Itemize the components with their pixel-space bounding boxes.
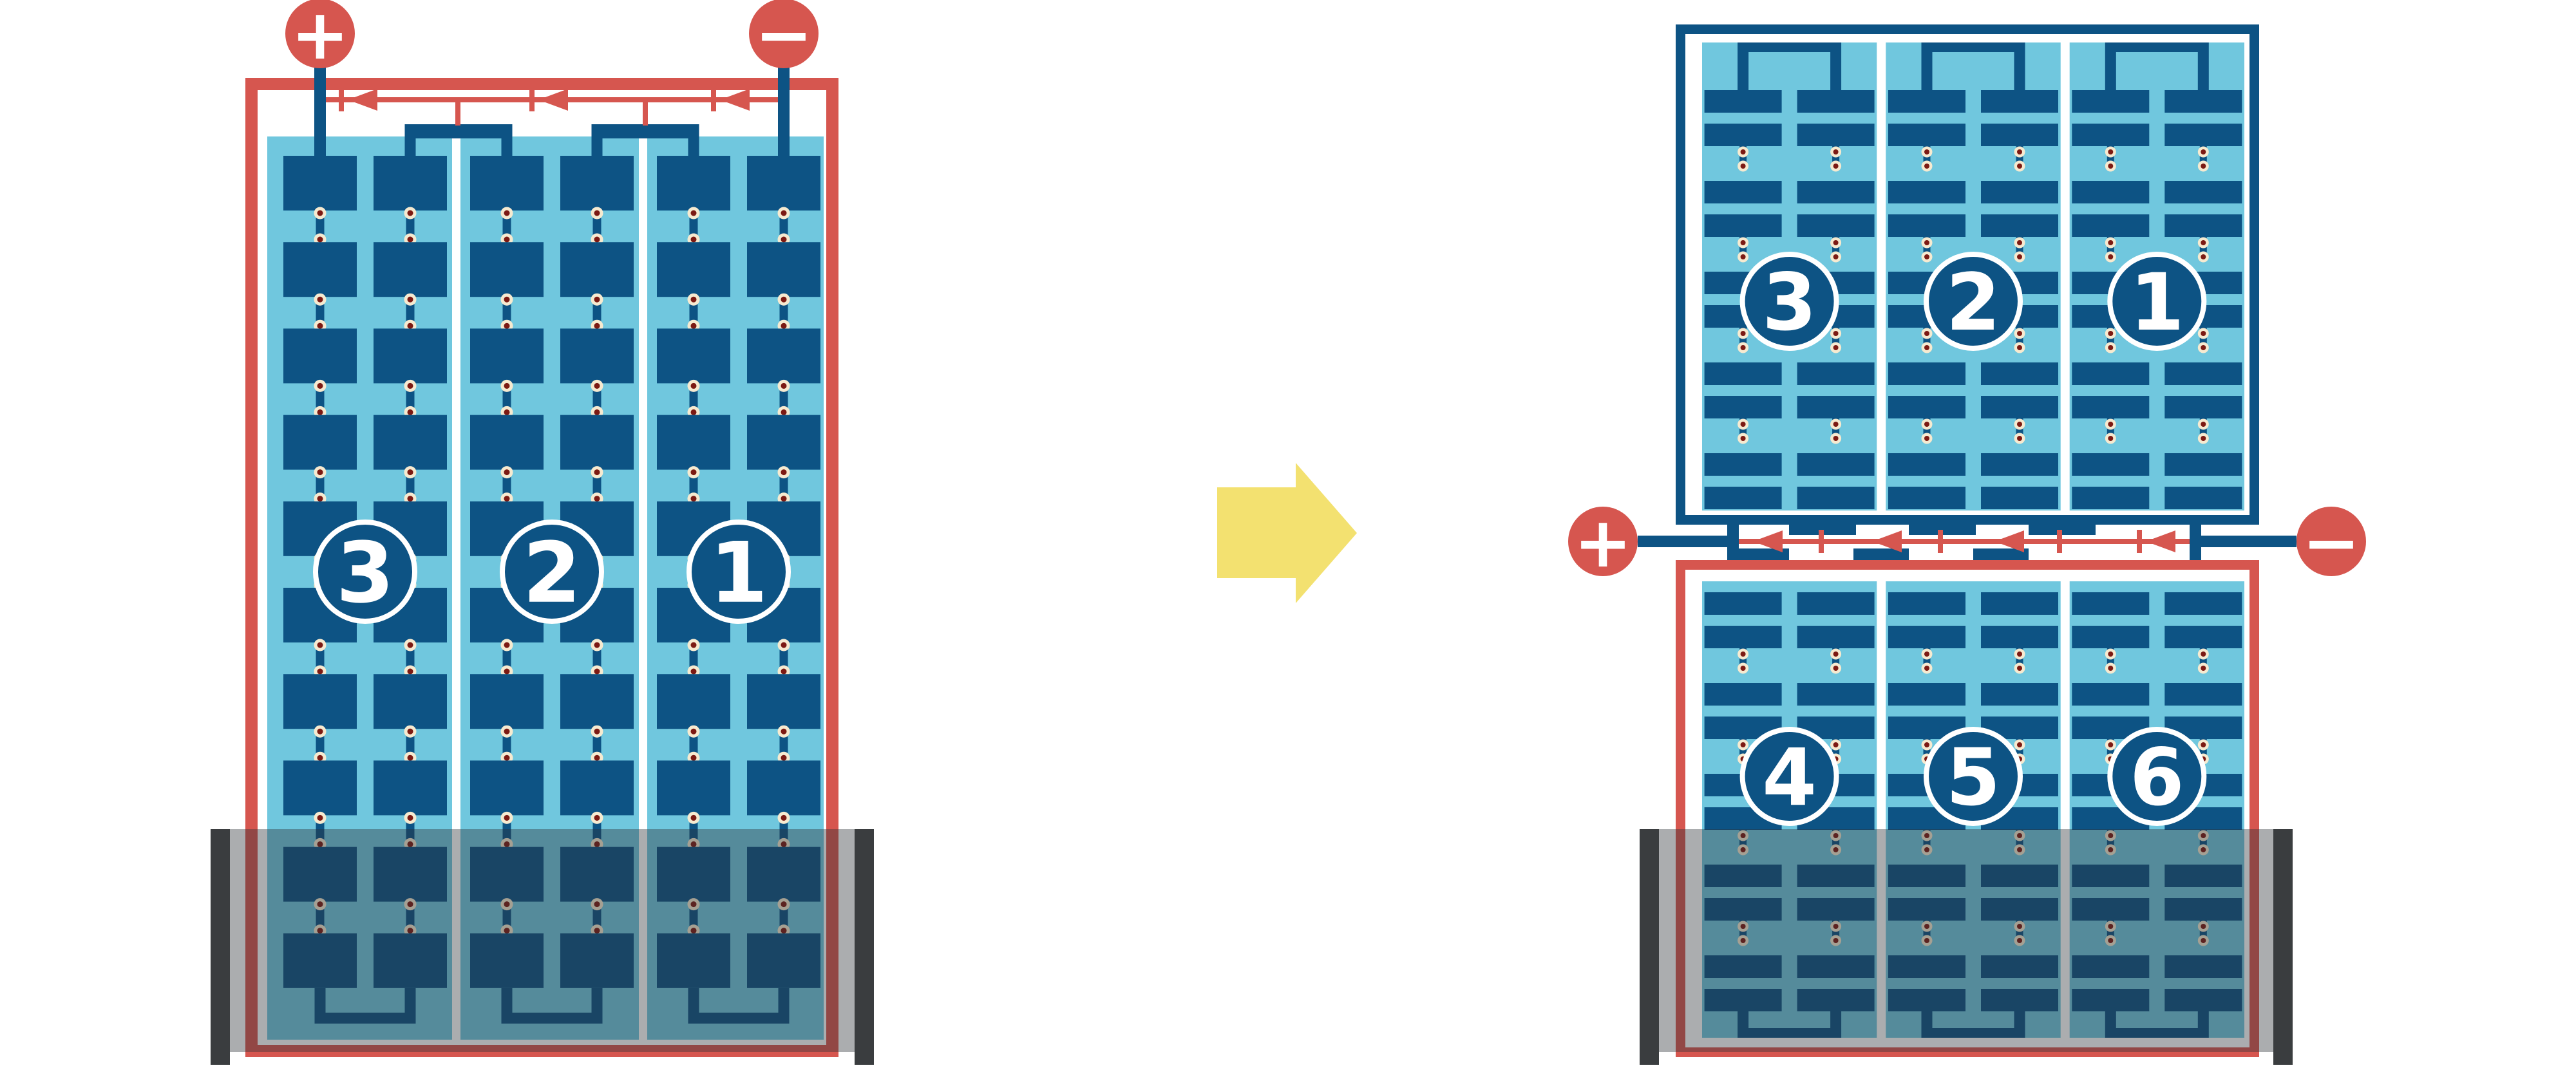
solar-cell xyxy=(2072,214,2149,237)
solder-dot-center xyxy=(408,669,413,675)
solder-dot-center xyxy=(408,815,413,821)
solder-dot-center xyxy=(2017,422,2022,427)
solder-dot-center xyxy=(2017,436,2022,441)
solder-dot-center xyxy=(317,237,323,243)
solder-dot-center xyxy=(317,669,323,675)
solar-cell xyxy=(747,674,820,729)
solder-dot-center xyxy=(1924,422,1929,427)
solar-cell xyxy=(2072,453,2149,476)
string-label: 2 xyxy=(1946,257,2001,348)
solder-dot-center xyxy=(2108,742,2113,747)
inter-string-bridge-leg xyxy=(688,138,699,157)
solar-cell xyxy=(1705,181,1782,203)
solder-dot-center xyxy=(1741,345,1746,350)
junction-bar xyxy=(2190,522,2201,561)
solder-dot-center xyxy=(1833,742,1839,747)
solder-dot-center xyxy=(594,383,600,389)
solder-dot-center xyxy=(317,755,323,761)
solder-dot-center xyxy=(317,729,323,735)
solder-dot-center xyxy=(594,237,600,243)
solar-cell xyxy=(747,415,820,470)
solder-dot-center xyxy=(781,755,787,761)
solar-cell xyxy=(1981,592,2058,615)
solar-cell xyxy=(1705,592,1782,615)
solar-cell xyxy=(2164,683,2242,706)
solder-dot-center xyxy=(781,409,787,415)
left-shade xyxy=(211,829,874,1065)
solar-cell xyxy=(1705,90,1782,113)
solder-dot-center xyxy=(2201,164,2206,169)
solder-dot-center xyxy=(504,409,510,415)
solar-cell xyxy=(283,674,357,729)
solar-cell xyxy=(1888,592,1965,615)
solar-cell xyxy=(283,760,357,815)
diode-tick xyxy=(1819,530,1824,553)
solar-cell xyxy=(1888,396,1965,418)
solar-cell xyxy=(657,760,730,815)
string-u-connector xyxy=(1922,42,2025,52)
solar-cell xyxy=(560,760,634,815)
solder-dot-center xyxy=(317,383,323,389)
string-u-connector-leg xyxy=(2198,52,2209,90)
solder-dot-center xyxy=(1833,666,1839,671)
solar-cell xyxy=(1981,487,2058,509)
right-arrow-icon xyxy=(1217,463,1357,603)
shade-bar xyxy=(2273,829,2293,1065)
string-u-connector-leg xyxy=(1738,52,1748,90)
string-u-connector-leg xyxy=(1830,52,1841,90)
solder-dot-center xyxy=(317,211,323,216)
solder-dot-center xyxy=(408,237,413,243)
string-u-connector-leg xyxy=(1922,52,1933,90)
string-label: 5 xyxy=(1946,732,2001,823)
solder-dot-center xyxy=(2017,254,2022,259)
shade-bar xyxy=(855,829,874,1065)
solar-cell xyxy=(1981,124,2058,146)
solder-dot-center xyxy=(2201,345,2206,350)
solder-dot-center xyxy=(1741,422,1746,427)
solder-dot-center xyxy=(408,469,413,475)
solder-dot-center xyxy=(1741,149,1746,155)
solar-cell xyxy=(657,156,730,211)
solder-dot-center xyxy=(594,642,600,648)
solder-dot-center xyxy=(504,237,510,243)
solder-dot-center xyxy=(1741,331,1746,336)
positive-terminal-sign: + xyxy=(291,0,350,75)
solar-cell xyxy=(470,242,544,297)
solder-dot-center xyxy=(1924,345,1929,350)
solar-cell xyxy=(2072,626,2149,648)
solder-dot-center xyxy=(408,496,413,501)
solder-dot-center xyxy=(781,323,787,329)
solder-dot-center xyxy=(594,496,600,501)
solder-dot-center xyxy=(594,323,600,329)
solder-dot-center xyxy=(691,669,697,675)
solar-cell xyxy=(1797,487,1875,509)
solar-cell xyxy=(747,156,820,211)
solder-dot-center xyxy=(2201,422,2206,427)
string-label: 3 xyxy=(1762,257,1817,348)
shade-bar xyxy=(211,829,230,1065)
solder-dot-center xyxy=(408,211,413,216)
solder-dot-center xyxy=(781,211,787,216)
solder-dot-center xyxy=(2017,240,2022,245)
solar-cell xyxy=(1705,396,1782,418)
inter-string-bridge xyxy=(592,124,699,138)
negative-terminal-stem xyxy=(2201,536,2297,547)
solar-cell xyxy=(560,242,634,297)
solder-dot-center xyxy=(781,237,787,243)
solar-cell xyxy=(1981,396,2058,418)
solar-cell xyxy=(2164,487,2242,509)
solar-cell xyxy=(1888,453,1965,476)
solar-cell xyxy=(2072,683,2149,706)
solar-cell xyxy=(2164,592,2242,615)
solar-cell xyxy=(1888,124,1965,146)
solder-dot-center xyxy=(1741,651,1746,657)
solder-dot-center xyxy=(2108,254,2113,259)
solder-dot-center xyxy=(781,669,787,675)
string-label: 4 xyxy=(1762,732,1817,823)
solder-dot-center xyxy=(1833,422,1839,427)
solar-cell xyxy=(1888,181,1965,203)
inter-string-bridge-leg xyxy=(502,138,513,157)
solder-dot-center xyxy=(781,496,787,501)
solder-dot-center xyxy=(408,323,413,329)
solder-dot-center xyxy=(504,211,510,216)
solder-dot-center xyxy=(594,729,600,735)
solder-dot-center xyxy=(504,297,510,303)
solder-dot-center xyxy=(317,496,323,501)
solder-dot-center xyxy=(504,323,510,329)
solar-cell xyxy=(2072,90,2149,113)
solder-dot-center xyxy=(408,642,413,648)
solder-dot-center xyxy=(691,297,697,303)
solder-dot-center xyxy=(408,755,413,761)
solder-dot-center xyxy=(1833,240,1839,245)
solar-cell xyxy=(1797,396,1875,418)
solar-cell xyxy=(283,328,357,383)
solar-cell xyxy=(2072,592,2149,615)
solder-dot-center xyxy=(2017,666,2022,671)
solder-dot-center xyxy=(504,496,510,501)
solder-dot-center xyxy=(504,669,510,675)
solder-dot-center xyxy=(2108,331,2113,336)
solder-dot-center xyxy=(2201,240,2206,245)
solder-dot-center xyxy=(781,642,787,648)
solder-dot-center xyxy=(2201,436,2206,441)
solder-dot-center xyxy=(691,409,697,415)
solar-cell xyxy=(374,760,447,815)
solar-cell xyxy=(2164,90,2242,113)
right-top-module: 321 xyxy=(1676,24,2259,525)
solar-cell xyxy=(374,242,447,297)
solar-cell xyxy=(2164,362,2242,385)
transform-arrow xyxy=(1217,463,1357,603)
solder-dot-center xyxy=(2108,422,2113,427)
solar-cell xyxy=(470,415,544,470)
solar-cell xyxy=(560,156,634,211)
negative-terminal-sign: − xyxy=(755,0,813,75)
positive-terminal-stem xyxy=(314,64,326,157)
solder-dot-center xyxy=(691,496,697,501)
solder-dot-center xyxy=(2108,240,2113,245)
solder-dot-center xyxy=(691,755,697,761)
solar-cell xyxy=(1888,683,1965,706)
solder-dot-center xyxy=(2017,651,2022,657)
solder-dot-center xyxy=(1924,666,1929,671)
solder-dot-center xyxy=(781,297,787,303)
solar-cell xyxy=(1981,683,2058,706)
solder-dot-center xyxy=(2017,345,2022,350)
solder-dot-center xyxy=(2108,164,2113,169)
solar-cell xyxy=(1981,90,2058,113)
solder-dot-center xyxy=(317,469,323,475)
solar-cell xyxy=(1797,626,1875,648)
solder-dot-center xyxy=(504,815,510,821)
solder-dot-center xyxy=(2108,436,2113,441)
solar-cell xyxy=(1888,90,1965,113)
solder-dot-center xyxy=(1833,436,1839,441)
solder-dot-center xyxy=(1741,240,1746,245)
solder-dot-center xyxy=(2201,149,2206,155)
solder-dot-center xyxy=(1924,331,1929,336)
solder-dot-center xyxy=(691,815,697,821)
solar-cell xyxy=(1888,214,1965,237)
solder-dot-center xyxy=(317,409,323,415)
shade-overlay xyxy=(1640,829,2293,1052)
solder-dot-center xyxy=(1741,254,1746,259)
solar-cell xyxy=(1705,124,1782,146)
solar-cell xyxy=(2164,214,2242,237)
string-label: 3 xyxy=(336,524,394,622)
solder-dot-center xyxy=(408,297,413,303)
solar-cell xyxy=(1981,453,2058,476)
solar-cell xyxy=(560,415,634,470)
solar-cell xyxy=(2072,362,2149,385)
diode-wire-stub xyxy=(643,100,648,126)
solar-cell xyxy=(1888,626,1965,648)
solar-module-shading-diagram: 321+−321+−456 xyxy=(0,0,2576,1068)
solder-dot-center xyxy=(1833,164,1839,169)
solder-dot-center xyxy=(408,729,413,735)
string-label: 1 xyxy=(2130,257,2184,348)
diode-tick xyxy=(711,88,716,111)
solder-dot-center xyxy=(2108,651,2113,657)
solder-dot-center xyxy=(2017,331,2022,336)
solder-dot-center xyxy=(1924,436,1929,441)
solar-cell xyxy=(374,674,447,729)
solder-dot-center xyxy=(504,755,510,761)
solar-cell xyxy=(283,156,357,211)
right-shade xyxy=(1640,829,2293,1065)
solder-dot-center xyxy=(2017,742,2022,747)
string-u-connector-leg xyxy=(2105,52,2116,90)
solder-dot-center xyxy=(2201,742,2206,747)
solder-dot-center xyxy=(691,469,697,475)
inter-string-bridge xyxy=(405,124,513,138)
solar-cell xyxy=(1981,626,2058,648)
solder-dot-center xyxy=(1741,436,1746,441)
solar-cell xyxy=(560,674,634,729)
string-label: 6 xyxy=(2130,732,2184,823)
solar-cell xyxy=(1797,362,1875,385)
solder-dot-center xyxy=(1833,149,1839,155)
solder-dot-center xyxy=(594,409,600,415)
negative-terminal-stem xyxy=(778,64,790,157)
solder-dot-center xyxy=(317,297,323,303)
diagram-canvas: 321+−321+−456 xyxy=(0,0,2576,1068)
negative-terminal-sign: − xyxy=(2302,503,2361,583)
solder-dot-center xyxy=(691,237,697,243)
solder-dot-center xyxy=(2108,345,2113,350)
solar-cell xyxy=(747,760,820,815)
inter-string-bridge-leg xyxy=(592,138,603,157)
diode-tick xyxy=(339,88,344,111)
solder-dot-center xyxy=(594,469,600,475)
solder-dot-center xyxy=(1924,149,1929,155)
solar-cell xyxy=(1705,214,1782,237)
solar-cell xyxy=(747,242,820,297)
solder-dot-center xyxy=(504,383,510,389)
solder-dot-center xyxy=(1924,164,1929,169)
solder-dot-center xyxy=(1924,651,1929,657)
solder-dot-center xyxy=(1741,164,1746,169)
solder-dot-center xyxy=(2017,164,2022,169)
solder-dot-center xyxy=(781,729,787,735)
shade-overlay xyxy=(211,829,874,1052)
solder-dot-center xyxy=(1924,240,1929,245)
solder-dot-center xyxy=(1741,742,1746,747)
solar-cell xyxy=(1797,90,1875,113)
solar-cell xyxy=(1705,362,1782,385)
solar-cell xyxy=(283,242,357,297)
solar-cell xyxy=(2164,626,2242,648)
solder-dot-center xyxy=(2108,149,2113,155)
solder-dot-center xyxy=(691,211,697,216)
solder-dot-center xyxy=(2201,331,2206,336)
solar-cell xyxy=(1797,124,1875,146)
solar-cell xyxy=(1705,453,1782,476)
solar-cell xyxy=(560,328,634,383)
solar-cell xyxy=(1797,453,1875,476)
solder-dot-center xyxy=(691,383,697,389)
solder-dot-center xyxy=(594,815,600,821)
string-u-connector-leg xyxy=(2014,52,2025,90)
solar-cell xyxy=(374,156,447,211)
solar-cell xyxy=(2072,487,2149,509)
solar-cell xyxy=(657,328,730,383)
solar-cell xyxy=(2164,181,2242,203)
solar-cell xyxy=(1981,181,2058,203)
diode-tick xyxy=(529,88,535,111)
solar-cell xyxy=(470,674,544,729)
solder-dot-center xyxy=(2201,254,2206,259)
solar-cell xyxy=(374,328,447,383)
inter-string-bridge-leg xyxy=(405,138,416,157)
solar-cell xyxy=(2164,124,2242,146)
solar-cell xyxy=(1705,683,1782,706)
string-label: 2 xyxy=(523,524,581,622)
solar-cell xyxy=(470,328,544,383)
solder-dot-center xyxy=(691,729,697,735)
string-label: 1 xyxy=(710,524,768,622)
string-u-connector xyxy=(2105,42,2209,52)
solar-cell xyxy=(1797,214,1875,237)
solar-cell xyxy=(657,415,730,470)
solder-dot-center xyxy=(691,323,697,329)
solar-cell xyxy=(2072,124,2149,146)
solar-cell xyxy=(1705,487,1782,509)
solar-cell xyxy=(1797,683,1875,706)
solar-cell xyxy=(1981,214,2058,237)
solder-dot-center xyxy=(1833,254,1839,259)
solar-cell xyxy=(1888,362,1965,385)
solder-dot-center xyxy=(504,642,510,648)
solder-dot-center xyxy=(317,815,323,821)
solar-cell xyxy=(283,415,357,470)
solar-cell xyxy=(657,242,730,297)
solder-dot-center xyxy=(2201,666,2206,671)
solder-dot-center xyxy=(1833,651,1839,657)
solder-dot-center xyxy=(781,469,787,475)
solar-cell xyxy=(1888,487,1965,509)
solder-dot-center xyxy=(594,669,600,675)
solar-cell xyxy=(374,415,447,470)
solar-cell xyxy=(2164,453,2242,476)
solder-dot-center xyxy=(408,383,413,389)
solder-dot-center xyxy=(2017,149,2022,155)
solder-dot-center xyxy=(504,729,510,735)
solder-dot-center xyxy=(594,211,600,216)
string-u-connector xyxy=(1738,42,1841,52)
solder-dot-center xyxy=(594,297,600,303)
solar-cell xyxy=(2072,396,2149,418)
solar-cell xyxy=(747,328,820,383)
diode-tick xyxy=(2057,530,2062,553)
solder-dot-center xyxy=(594,755,600,761)
positive-terminal-stem xyxy=(1638,536,1734,547)
solder-dot-center xyxy=(1924,742,1929,747)
bypass-diode-wire xyxy=(1739,539,2190,544)
solar-cell xyxy=(1797,181,1875,203)
solder-dot-center xyxy=(781,815,787,821)
solar-cell xyxy=(2072,181,2149,203)
solder-dot-center xyxy=(691,642,697,648)
diode-tick xyxy=(1938,530,1943,553)
solder-dot-center xyxy=(1833,345,1839,350)
solder-dot-center xyxy=(781,383,787,389)
solar-cell xyxy=(1705,626,1782,648)
positive-terminal-sign: + xyxy=(1574,503,1633,583)
shade-bar xyxy=(1640,829,1659,1065)
solder-dot-center xyxy=(1741,666,1746,671)
solder-dot-center xyxy=(317,323,323,329)
solar-cell xyxy=(2164,396,2242,418)
diode-tick xyxy=(2137,530,2142,553)
solder-dot-center xyxy=(2108,666,2113,671)
solder-dot-center xyxy=(317,642,323,648)
solar-cell xyxy=(657,674,730,729)
solar-cell xyxy=(470,156,544,211)
diode-wire-stub xyxy=(455,100,460,126)
diode-arrow-icon xyxy=(2146,530,2175,552)
solder-dot-center xyxy=(1833,331,1839,336)
solar-cell xyxy=(1797,592,1875,615)
solder-dot-center xyxy=(2201,651,2206,657)
solder-dot-center xyxy=(1924,254,1929,259)
solder-dot-center xyxy=(408,409,413,415)
